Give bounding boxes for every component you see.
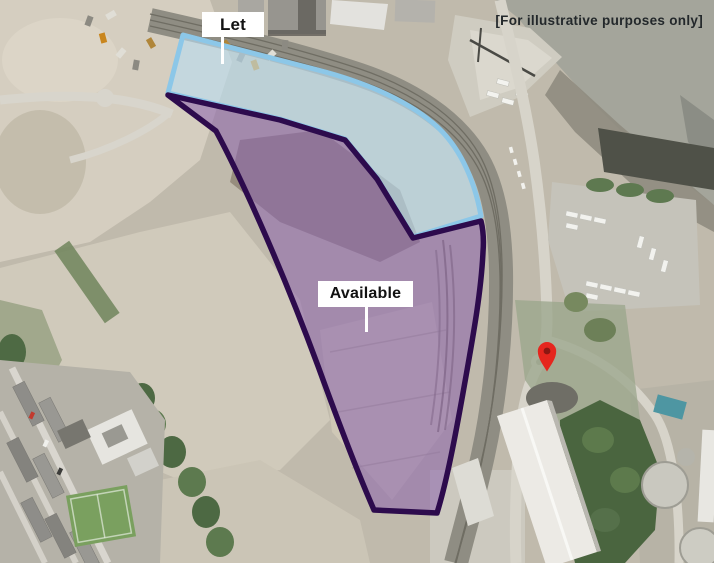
site-plan-map: Let Available [For illustrative purposes…: [0, 0, 714, 563]
storage-tank: [680, 528, 714, 563]
available-region-label: Available: [318, 281, 413, 307]
let-callout-line: [221, 37, 224, 64]
residential-area: [0, 360, 165, 563]
disclaimer-text: [For illustrative purposes only]: [495, 13, 703, 28]
sports-pitch: [66, 485, 136, 547]
storage-tank: [642, 462, 688, 508]
let-region-label: Let: [202, 12, 264, 37]
available-callout-line: [365, 307, 368, 332]
